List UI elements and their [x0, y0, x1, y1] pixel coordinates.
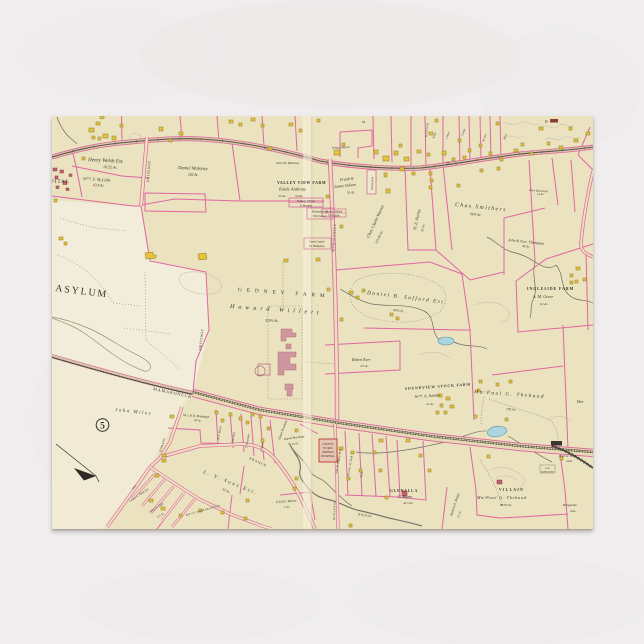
- svg-text:N.Y.&W.: N.Y.&W.: [323, 447, 334, 450]
- svg-text:50 Ac.: 50 Ac.: [295, 194, 304, 198]
- svg-text:319½ Ac.: 319½ Ac.: [265, 319, 279, 323]
- svg-text:44 Ac: 44 Ac: [566, 459, 573, 463]
- svg-text:F. Murphy: F. Murphy: [328, 214, 340, 217]
- svg-text:41 Ac.: 41 Ac.: [426, 402, 434, 406]
- svg-text:Wm Jackson: Wm Jackson: [313, 215, 327, 218]
- svg-text:25 Ac.: 25 Ac.: [278, 194, 287, 198]
- svg-text:John H. Maloney: John H. Maloney: [276, 161, 300, 165]
- svg-text:40 Ac.: 40 Ac.: [194, 418, 202, 423]
- svg-text:G. Bayne: G. Bayne: [398, 495, 412, 499]
- svg-text:HOSPITAL: HOSPITAL: [321, 455, 335, 458]
- svg-text:VILLAIN: VILLAIN: [499, 488, 524, 492]
- svg-text:VALLEY VIEW FARM: VALLEY VIEW FARM: [277, 181, 326, 185]
- svg-text:ST.: ST.: [446, 161, 451, 165]
- svg-text:88.97 Ac.: 88.97 Ac.: [500, 503, 512, 507]
- svg-text:CEMETERY: CEMETERY: [541, 470, 555, 473]
- svg-text:4½ Ac.: 4½ Ac.: [360, 364, 369, 368]
- svg-text:5: 5: [100, 422, 105, 432]
- svg-text:Robert Kerr: Robert Kerr: [351, 358, 371, 362]
- svg-text:Paul G. Theb: Paul G. Theb: [558, 454, 576, 458]
- svg-text:62 Ac.: 62 Ac.: [540, 302, 549, 306]
- svg-text:102 Ac.: 102 Ac.: [188, 173, 199, 177]
- svg-text:ORPHAN: ORPHAN: [322, 451, 334, 454]
- svg-text:199 Ac.: 199 Ac.: [506, 407, 517, 412]
- svg-text:Pickham Farm: Pickham Farm: [312, 211, 329, 214]
- svg-text:Emile Anthony: Emile Anthony: [278, 187, 307, 192]
- svg-text:H: H: [545, 120, 548, 124]
- svg-text:14 Ac.: 14 Ac.: [537, 193, 544, 196]
- svg-text:Samuel Willett: Samuel Willett: [297, 199, 315, 203]
- svg-text:W. Humphrey: W. Humphrey: [309, 245, 325, 248]
- svg-text:F. Murphy: F. Murphy: [300, 203, 313, 207]
- svg-text:Heir: Heir: [576, 400, 584, 404]
- svg-text:44.5 Ac.: 44.5 Ac.: [403, 501, 414, 505]
- svg-text:wha: wha: [570, 509, 576, 513]
- svg-text:PITAL: PITAL: [52, 180, 70, 185]
- svg-text:5 Ac.: 5 Ac.: [284, 505, 291, 509]
- svg-text:Frank Cample: Frank Cample: [309, 241, 325, 244]
- svg-text:COUNTY: COUNTY: [322, 443, 334, 446]
- svg-text:M: M: [362, 120, 365, 124]
- svg-text:MʦˢPaul G. Thebaud: MʦˢPaul G. Thebaud: [476, 495, 527, 500]
- svg-text:A. M. Greer: A. M. Greer: [532, 294, 553, 299]
- svg-text:Hungarian: Hungarian: [562, 503, 577, 507]
- svg-text:INGLESIDE FARM: INGLESIDE FARM: [527, 287, 574, 291]
- svg-text:HUGUENOT: HUGUENOT: [332, 501, 337, 520]
- svg-text:GLENALLA: GLENALLA: [390, 489, 418, 493]
- svg-text:43.8 Ac.: 43.8 Ac.: [93, 183, 105, 188]
- svg-text:PICKHAM: PICKHAM: [371, 177, 374, 191]
- svg-text:18.52 Ac.: 18.52 Ac.: [103, 165, 118, 170]
